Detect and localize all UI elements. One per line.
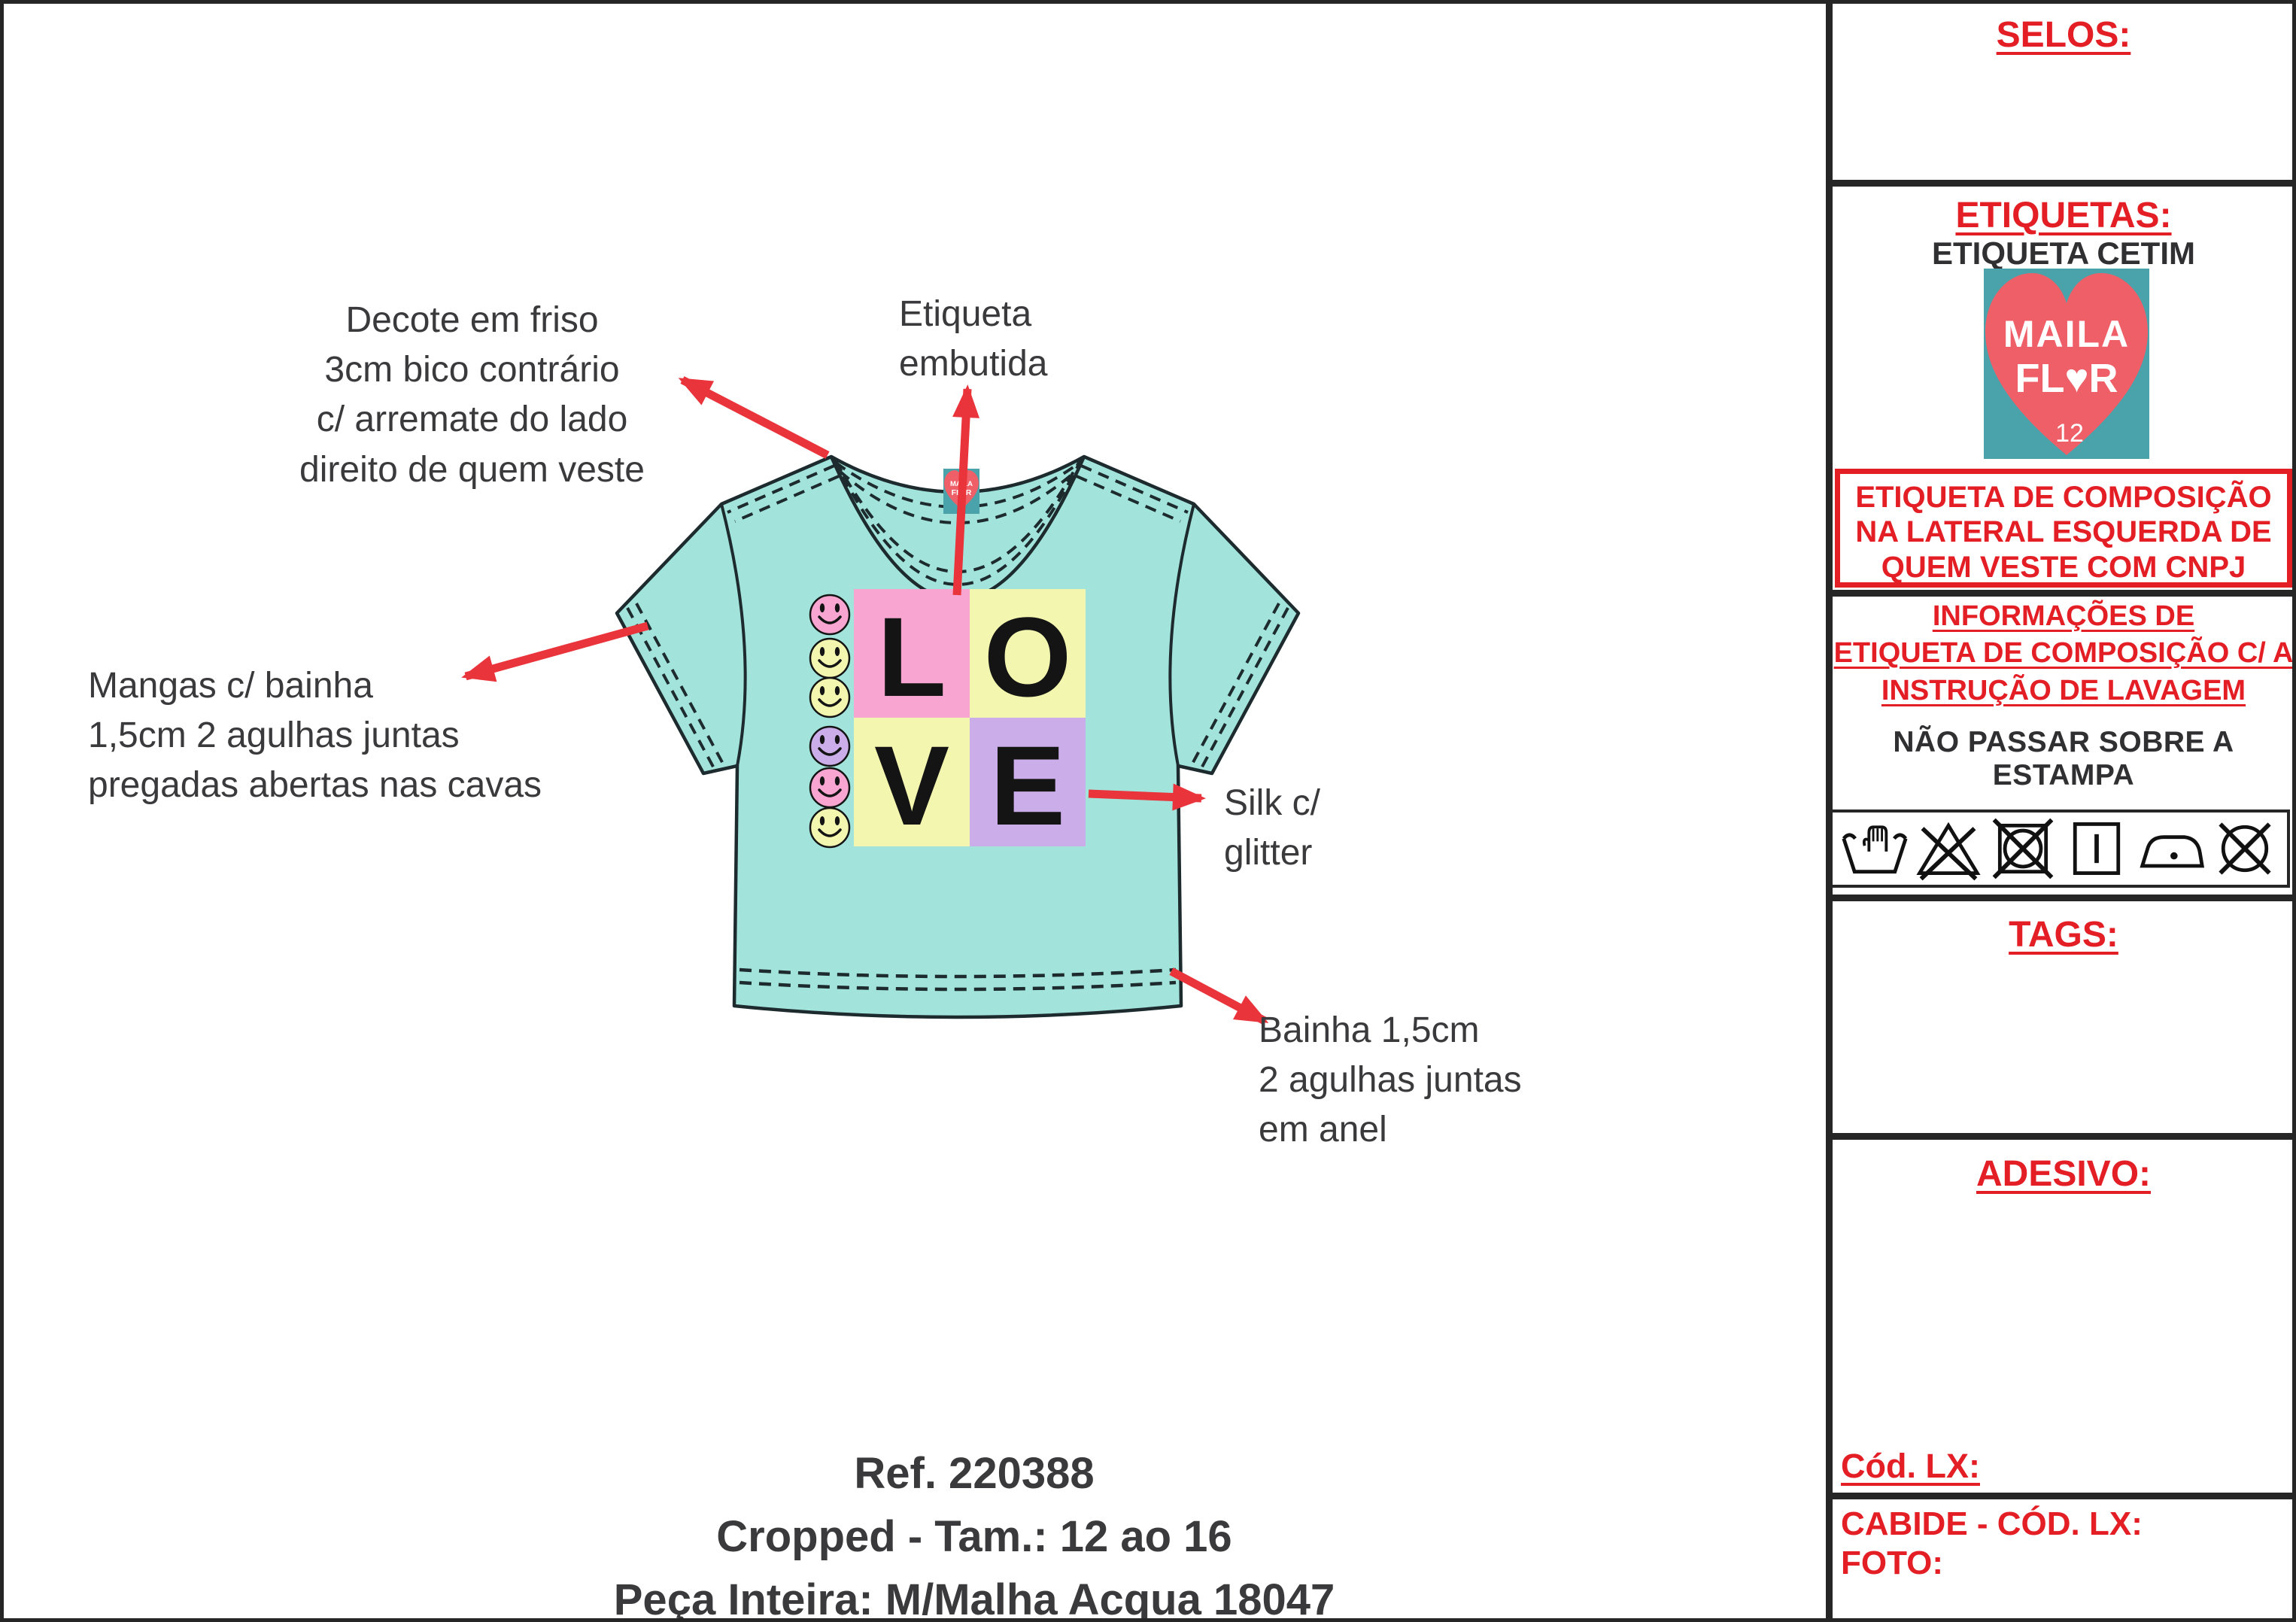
cod-lx-label: Cód. LX: bbox=[1841, 1447, 1980, 1486]
brand-label-line2: FL♥R bbox=[2015, 356, 2118, 401]
brand-label-swatch: MAILA FL♥R 12 bbox=[1984, 269, 2149, 459]
love-letter-v: V bbox=[874, 722, 949, 849]
footer-reference-block: Ref. 220388 Cropped - Tam.: 12 ao 16 Peç… bbox=[448, 1442, 1501, 1622]
iron-low-temp-icon bbox=[2135, 814, 2207, 883]
smiley-icon bbox=[810, 727, 849, 766]
tags-header: TAGS: bbox=[1833, 914, 2294, 955]
annotation-hem: Bainha 1,5cm 2 agulhas juntas em anel bbox=[1259, 1006, 1522, 1156]
annotation-neck-label: Etiqueta embutida bbox=[899, 290, 1047, 389]
info-header: INFORMAÇÕES DE ETIQUETA DE COMPOSIÇÃO C/… bbox=[1833, 598, 2294, 709]
footer-size-range: Cropped - Tam.: 12 ao 16 bbox=[448, 1505, 1501, 1569]
smiley-icon bbox=[810, 595, 849, 634]
arrow-neckline bbox=[682, 380, 828, 455]
tech-pack-sheet: MAILA FL♥R 12 L O V E bbox=[0, 0, 2296, 1622]
footer-fabric: Peça Inteira: M/Malha Acqua 18047 bbox=[448, 1569, 1501, 1622]
hand-wash-icon bbox=[1839, 814, 1911, 883]
adesivo-header: ADESIVO: bbox=[1833, 1153, 2294, 1195]
arrow-print bbox=[1089, 794, 1201, 798]
annotation-neckline: Decote em friso 3cm bico contrário c/ ar… bbox=[252, 296, 692, 495]
foto-label: FOTO: bbox=[1841, 1545, 1943, 1582]
love-letter-l: L bbox=[877, 594, 946, 720]
selos-header: SELOS: bbox=[1833, 14, 2294, 56]
section-divider bbox=[1833, 1493, 2296, 1499]
love-letter-e: E bbox=[990, 722, 1065, 849]
footer-ref: Ref. 220388 bbox=[448, 1442, 1501, 1505]
do-not-tumble-dry-icon bbox=[1987, 814, 2059, 883]
line-dry-icon bbox=[2061, 814, 2133, 883]
do-not-bleach-icon bbox=[1912, 814, 1985, 883]
do-not-dry-clean-icon bbox=[2209, 814, 2281, 883]
cabide-label: CABIDE - CÓD. LX: bbox=[1841, 1505, 2143, 1543]
annotation-print: Silk c/ glitter bbox=[1224, 779, 1320, 878]
print-warning: NÃO PASSAR SOBRE A ESTAMPA bbox=[1833, 726, 2294, 792]
smiley-icon bbox=[810, 678, 849, 717]
etiqueta-type: ETIQUETA CETIM bbox=[1833, 235, 2294, 272]
arrow-hem bbox=[1171, 971, 1265, 1021]
love-letter-o: O bbox=[984, 594, 1072, 720]
annotation-sleeves: Mangas c/ bainha 1,5cm 2 agulhas juntas … bbox=[88, 661, 542, 811]
section-divider bbox=[1833, 895, 2296, 901]
smiley-icon bbox=[810, 768, 849, 807]
smiley-icon bbox=[810, 639, 849, 678]
smiley-icon bbox=[810, 808, 849, 847]
section-divider bbox=[1833, 590, 2296, 597]
section-divider bbox=[1833, 180, 2296, 187]
brand-label-size: 12 bbox=[2055, 419, 2084, 448]
brand-label-line1: MAILA bbox=[2003, 313, 2130, 355]
section-divider bbox=[1833, 1133, 2296, 1140]
care-symbols-box bbox=[1830, 809, 2290, 888]
etiquetas-header: ETIQUETAS: bbox=[1833, 195, 2294, 236]
composition-note-box: ETIQUETA DE COMPOSIÇÃO NA LATERAL ESQUER… bbox=[1835, 469, 2292, 588]
